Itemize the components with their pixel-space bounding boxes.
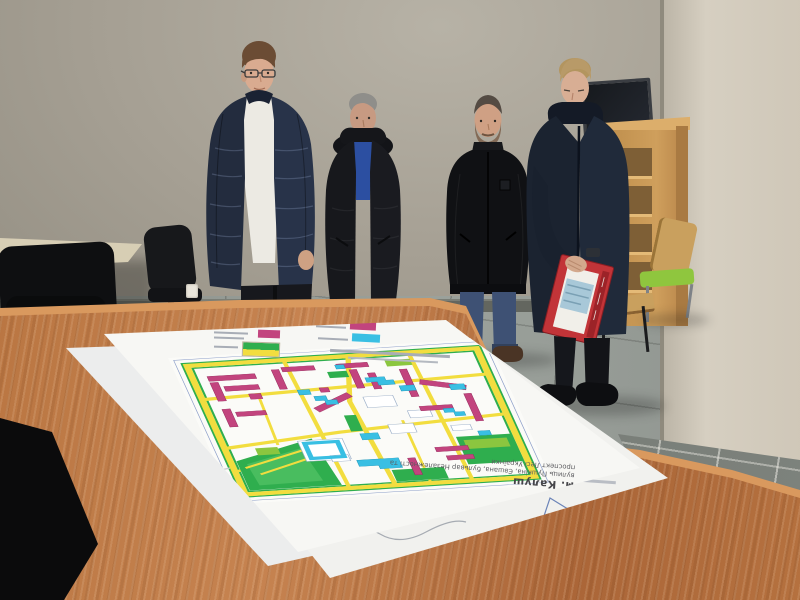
legend-swatch-residential (258, 330, 280, 339)
jacket-left (206, 96, 247, 290)
jacket-left (325, 140, 356, 304)
man-gray-hair-blue-sweater (310, 78, 435, 333)
chest-patch (500, 180, 510, 190)
jacket-right (370, 140, 401, 304)
black-sneaker (576, 382, 619, 406)
man-blond-parka-booklet (518, 46, 673, 411)
hood-collar (340, 128, 386, 145)
legend-swatch-greenery (242, 341, 281, 357)
meeting-room-photo: м. Калуш вулиць Пушкіна, Євшана, бульвар… (0, 0, 800, 600)
face (561, 71, 589, 105)
blue-sweater (354, 142, 372, 200)
legend-swatch-public (352, 333, 380, 342)
wristwatch (586, 248, 600, 257)
white-shirt (241, 98, 279, 263)
